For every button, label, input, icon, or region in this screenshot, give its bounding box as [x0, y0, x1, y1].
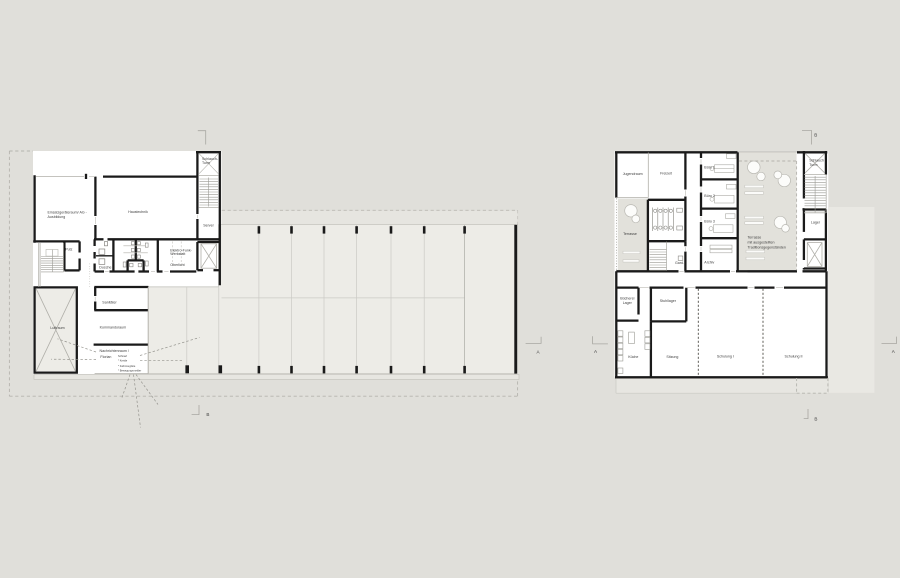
svg-text:Werkstatt: Werkstatt [170, 252, 185, 256]
svg-text:Sitzung: Sitzung [666, 355, 678, 359]
svg-text:Traditionsgegenständen: Traditionsgegenständen [748, 246, 786, 250]
svg-text:Büro 3: Büro 3 [704, 219, 715, 223]
svg-text:* Bewegungsmelder: * Bewegungsmelder [118, 369, 141, 373]
svg-text:Turm: Turm [809, 163, 817, 167]
svg-text:Gard.: Gard. [675, 261, 684, 265]
svg-text:* Fahrzeugliste: * Fahrzeugliste [118, 364, 136, 368]
svg-text:Kommandoraum: Kommandoraum [100, 326, 127, 330]
svg-text:Küche: Küche [628, 355, 638, 359]
svg-text:mit ausgestellten: mit ausgestellten [748, 240, 775, 244]
svg-text:Archiv: Archiv [704, 261, 714, 265]
svg-text:Dusche: Dusche [99, 266, 111, 270]
svg-text:Server: Server [203, 224, 214, 228]
svg-text:Schrauf: Schrauf [118, 354, 127, 358]
svg-text:Haustechnik: Haustechnik [128, 210, 148, 214]
svg-text:Schulung II: Schulung II [785, 355, 803, 359]
svg-text:Lager: Lager [623, 301, 633, 305]
svg-text:Oberlicht: Oberlicht [170, 263, 184, 267]
svg-text:Stuhllager: Stuhllager [660, 299, 677, 303]
svg-text:B: B [814, 417, 817, 422]
svg-text:Terrasse: Terrasse [623, 232, 637, 236]
svg-text:Ausbildung: Ausbildung [48, 215, 66, 219]
svg-text:B: B [206, 412, 209, 417]
svg-text:Putz: Putz [65, 248, 72, 252]
svg-text:Büro 2: Büro 2 [704, 194, 715, 198]
svg-text:Jugendraum: Jugendraum [623, 172, 643, 176]
svg-text:B: B [814, 133, 817, 138]
svg-text:Freizeit: Freizeit [660, 172, 672, 176]
svg-text:Nachrichtenraum /: Nachrichtenraum / [100, 349, 129, 353]
svg-text:Florian: Florian [100, 355, 111, 359]
svg-text:Luftraum: Luftraum [50, 326, 64, 330]
svg-text:Terrasse: Terrasse [748, 236, 762, 240]
svg-text:Schulung I: Schulung I [717, 355, 734, 359]
svg-text:Büro 1: Büro 1 [704, 165, 715, 169]
svg-text:Lager: Lager [811, 221, 821, 225]
svg-text:Turm: Turm [202, 161, 210, 165]
svg-text:* Kreide: * Kreide [118, 359, 128, 363]
svg-text:Sanitäter: Sanitäter [102, 300, 117, 304]
